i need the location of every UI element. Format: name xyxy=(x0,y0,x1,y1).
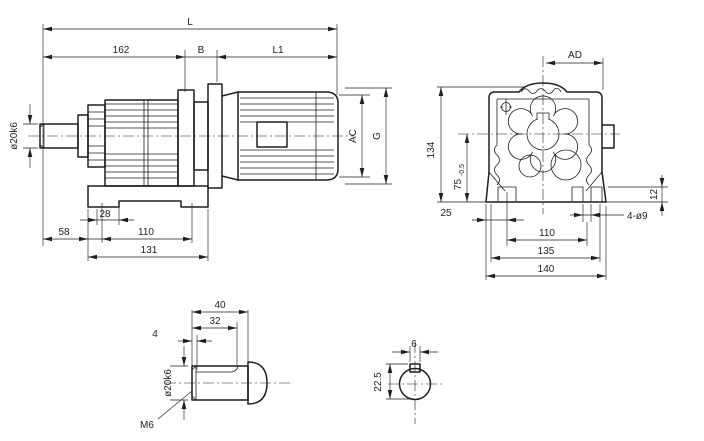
housing-split-lines xyxy=(144,100,148,186)
front-view-geometry xyxy=(458,56,620,214)
key-section-view: 6 22.5 xyxy=(373,339,444,424)
input-bore xyxy=(551,150,581,180)
dim-label-12: 12 xyxy=(649,188,660,200)
dimension-arrows xyxy=(388,350,429,399)
dim-label-AD: AD xyxy=(568,50,582,61)
dimension-lines xyxy=(390,352,438,399)
dim-label-shaft-dia-detail: ø20k6 xyxy=(163,369,174,397)
front-view: AD 134 75 -0.5 25 12 4-ø9 110 135 140 xyxy=(426,50,668,280)
vent-plug-symbol xyxy=(500,99,512,115)
foot-section-hatch-right xyxy=(591,187,602,202)
front-view-centerlines xyxy=(458,56,620,214)
side-view-geometry xyxy=(28,84,354,207)
dim-label-L1: L1 xyxy=(272,45,284,56)
gear-housing xyxy=(105,100,178,186)
gearmotor-dimension-drawing: L 162 B L1 ø20k6 AC G 28 58 110 131 xyxy=(0,0,704,441)
dim-label-22-5: 22.5 xyxy=(373,372,384,392)
dimension-lines xyxy=(43,29,386,257)
key-section-centerlines xyxy=(388,342,444,424)
mounting-foot xyxy=(88,186,208,207)
key-section-geometry xyxy=(388,342,444,424)
foot-section-hatch-left xyxy=(572,187,583,202)
dim-label-25: 25 xyxy=(440,208,452,219)
dim-label-6: 6 xyxy=(411,339,417,350)
dim-label-131: 131 xyxy=(141,245,158,256)
gearbox-flange xyxy=(178,90,194,186)
shaft-body xyxy=(192,366,248,400)
dim-label-110-front: 110 xyxy=(539,228,555,239)
dim-label-G: G xyxy=(372,132,383,140)
dim-label-L: L xyxy=(187,17,193,28)
dim-label-32: 32 xyxy=(209,316,221,327)
side-view-dimensions: L 162 B L1 ø20k6 AC G 28 58 110 131 xyxy=(9,17,392,261)
terminal-box xyxy=(257,122,287,147)
dome-wavy-line xyxy=(521,88,561,93)
housing-fins xyxy=(105,104,178,178)
front-view-dimensions: AD 134 75 -0.5 25 12 4-ø9 110 135 140 xyxy=(426,50,668,280)
dim-label-B: B xyxy=(198,45,205,56)
keyseat-line xyxy=(196,366,238,372)
dim-label-holes: 4-ø9 xyxy=(627,211,648,222)
key-section-dimensions: 6 22.5 xyxy=(373,339,438,399)
dim-label-40: 40 xyxy=(214,300,226,311)
shaft-detail-view: 40 32 4 ø20k6 M6 xyxy=(140,300,292,431)
dim-label-28: 28 xyxy=(99,209,111,220)
side-boss xyxy=(602,125,614,148)
shaft-detail-geometry xyxy=(158,362,292,419)
dim-label-134: 134 xyxy=(426,141,437,158)
dim-label-M6: M6 xyxy=(140,420,154,431)
side-view: L 162 B L1 ø20k6 AC G 28 58 110 131 xyxy=(9,17,392,261)
dim-label-162: 162 xyxy=(113,45,130,56)
dim-label-58: 58 xyxy=(58,227,70,238)
dim-label-135: 135 xyxy=(538,246,555,257)
dim-label-75-tol: -0.5 xyxy=(459,164,466,176)
dim-label-110: 110 xyxy=(138,227,154,238)
dim-label-shaft-dia: ø20k6 xyxy=(9,122,20,150)
foot-gussets xyxy=(489,172,602,191)
dim-label-140: 140 xyxy=(538,264,555,275)
dim-label-4: 4 xyxy=(152,329,158,340)
drawing-page: L 162 B L1 ø20k6 AC G 28 58 110 131 xyxy=(0,0,704,441)
dim-label-75: 75 xyxy=(453,178,464,190)
dim-label-AC: AC xyxy=(348,129,359,143)
